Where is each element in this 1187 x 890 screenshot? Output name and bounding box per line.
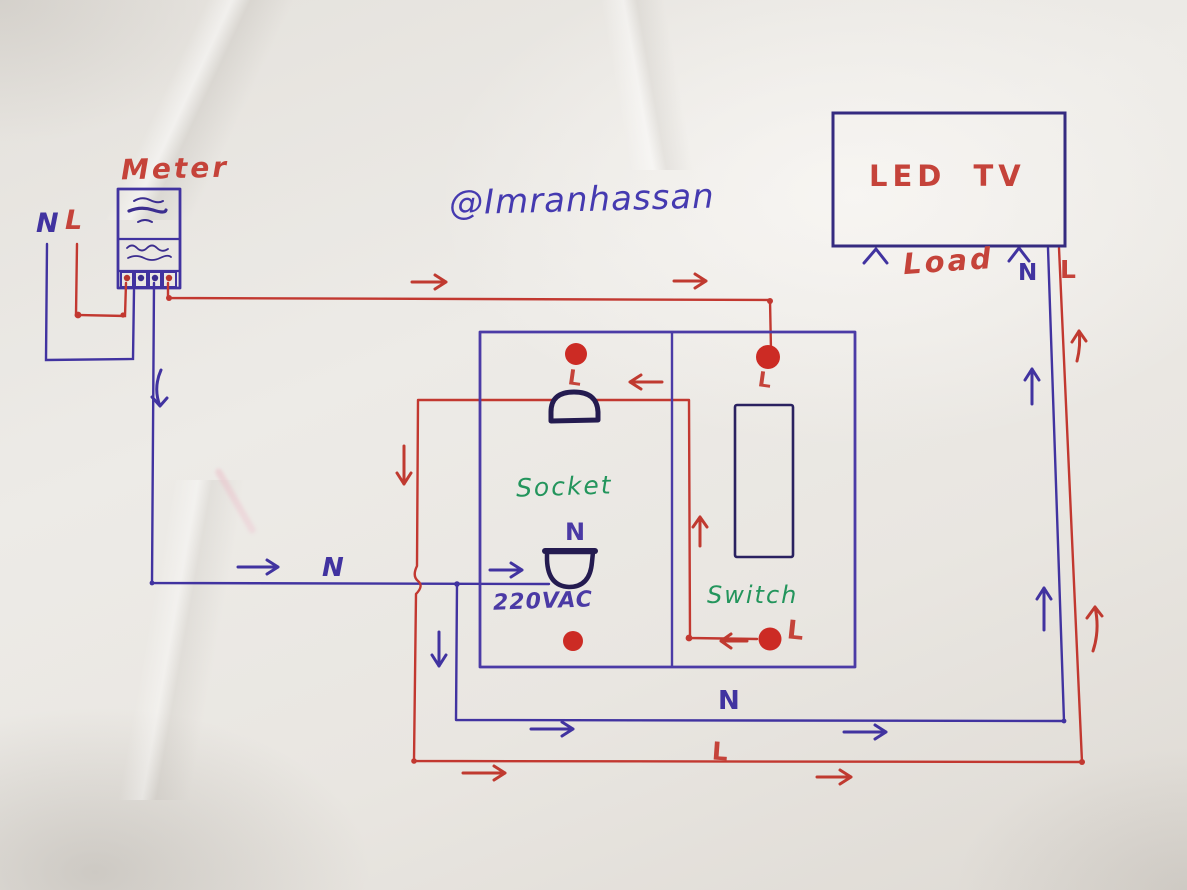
flow-arrow-up (693, 517, 707, 546)
flow-caret-up (864, 249, 887, 263)
flow-arrow-right (531, 722, 573, 736)
switch-live-out-label: L (786, 617, 805, 645)
switch-live-out-dot (759, 628, 782, 651)
flow-arrow-right (674, 274, 706, 288)
flow-arrow-right (238, 560, 278, 574)
wire-blob (767, 298, 773, 304)
wire-junction (150, 581, 155, 586)
switched-live-wire (414, 248, 1082, 762)
watermark-handle: @Imranhassan (449, 180, 716, 221)
paper-background: Meter N L @Imranhassan LED TV Load N L L… (0, 0, 1187, 890)
wire-junction (1062, 719, 1067, 724)
meter-title: Meter (121, 154, 230, 185)
socket-neutral-terminal-dome (545, 551, 595, 587)
live-flow-arrows (397, 274, 1102, 784)
meter-display-scribbles (127, 198, 171, 260)
flow-arrow-right (844, 725, 886, 739)
wire-blob (166, 295, 172, 301)
flow-arrow-up (1072, 331, 1086, 361)
supply-live-label: L (65, 207, 82, 234)
wire-junction (454, 581, 460, 587)
neutral-feed-wire-label: N (322, 555, 344, 581)
tv-neutral-label: N (1018, 262, 1037, 285)
supply-neutral-wire (46, 244, 134, 360)
wire-blob (75, 312, 82, 319)
supply-neutral-label: N (36, 210, 59, 237)
socket-neutral-terminal-label: N (565, 520, 585, 544)
flow-arrow-right (463, 766, 505, 780)
live-feed-wire (168, 283, 771, 351)
flow-arrow-up (1025, 369, 1039, 404)
flow-arrow-down (397, 446, 411, 484)
switch-actuator[interactable] (735, 405, 793, 557)
socket-live-terminal-dome (551, 392, 598, 421)
live-return-wire-label: L (711, 738, 729, 764)
socket-name: Socket (516, 472, 613, 500)
wire-junction (1079, 759, 1085, 765)
flow-arrow-up (1087, 607, 1102, 651)
flow-arrow-right (490, 563, 522, 577)
flow-arrow-left (721, 634, 747, 648)
socket-neutral-dot (563, 631, 583, 651)
tv-title: LED TV (869, 162, 1026, 191)
switch-live-in-dot (756, 345, 780, 369)
flow-arrow-down (432, 632, 446, 666)
socket-voltage-label: 220VAC (493, 589, 594, 614)
wire-junction (686, 635, 693, 642)
neutral-feed-wire (152, 283, 549, 584)
switch-name: Switch (707, 583, 798, 607)
wire-blob (120, 312, 125, 317)
socket-live-dot (565, 343, 587, 365)
flow-arrow-right (817, 770, 851, 784)
flow-arrow-right (412, 275, 446, 289)
neutral-return-wire-label: N (718, 688, 740, 714)
flow-arrow-up (1037, 588, 1051, 630)
wiring-diagram-canvas (0, 0, 1187, 890)
flow-arrow-left (630, 375, 662, 389)
wire-junction (411, 758, 417, 764)
tv-load-caption: Load (902, 244, 995, 279)
tv-live-label: L (1060, 257, 1076, 282)
meter-graphic (118, 189, 180, 288)
